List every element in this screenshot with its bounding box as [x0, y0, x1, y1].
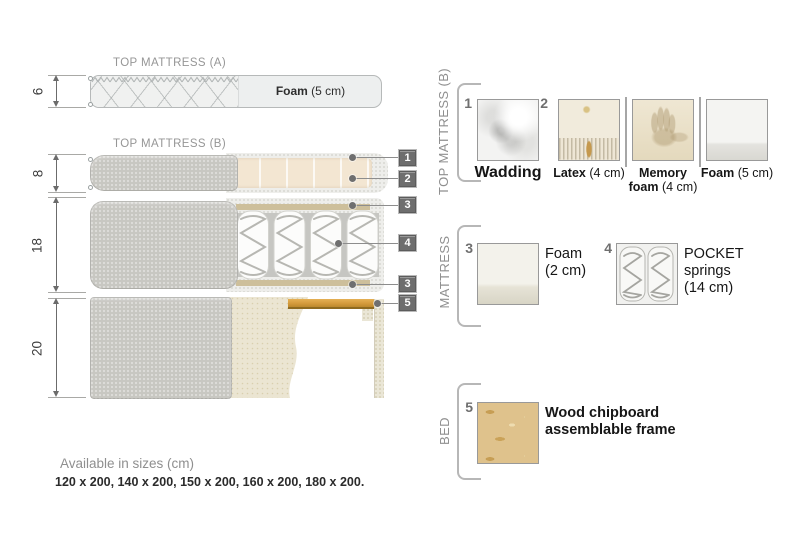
latex-name: Latex [553, 166, 586, 180]
callout-dot-5 [374, 300, 381, 307]
wadding-swatch [477, 99, 539, 161]
pocket-springs-name: POCKET springs [684, 246, 743, 279]
button-tuft [88, 185, 93, 190]
legend-num-5: 5 [459, 399, 473, 415]
foam-layer-label: Foam (5 cm) [239, 84, 382, 98]
callout-dot-4 [335, 240, 342, 247]
top-mattress-b-graphic [90, 153, 388, 193]
top-mattress-a-graphic: Foam (5 cm) [90, 75, 382, 108]
available-sizes-list: 120 x 200, 140 x 200, 150 x 200, 160 x 2… [55, 475, 364, 489]
callout-line-1 [355, 157, 399, 158]
foam-5cm-swatch [706, 99, 768, 161]
callout-2: 2 [399, 171, 416, 187]
callout-line-2 [355, 178, 399, 179]
legend-divider-1 [625, 97, 627, 167]
mattress-construction-infographic: 6 8 18 20 TOP MATTRESS (A) [0, 0, 800, 533]
dim-arrow-down [53, 186, 59, 192]
pocket-springs-swatch [616, 243, 678, 305]
pocket-springs-label: POCKET springs (14 cm) [684, 246, 758, 297]
dim-line [56, 156, 57, 190]
dim-line [56, 300, 57, 393]
callout-line-3b [355, 284, 399, 285]
dim-value: 18 [30, 233, 45, 259]
core-fabric-cover [90, 201, 238, 289]
memory-foam-swatch [632, 99, 694, 161]
legend-num-3: 3 [459, 240, 473, 256]
dim-arrow-down [53, 286, 59, 292]
foam-5cm-name: Foam [701, 166, 734, 180]
bed-base-graphic [90, 297, 384, 399]
dim-value: 20 [30, 336, 45, 362]
chipboard-name: Wood chipboard assemblable frame [545, 405, 676, 438]
frame-corner-block [362, 308, 373, 321]
callout-3b: 3 [399, 276, 416, 292]
foam-2cm-name: Foam [545, 246, 582, 262]
dim-arrow-up [53, 75, 59, 81]
dim-value: 8 [31, 161, 46, 187]
callout-3a: 3 [399, 197, 416, 213]
button-tuft [88, 157, 93, 162]
wood-slat [288, 299, 374, 309]
legend-num-1: 1 [458, 95, 472, 111]
dim-arrow-up [53, 154, 59, 160]
legend-num-2: 2 [534, 95, 548, 111]
foam-block-row [234, 158, 372, 188]
foam-2cm-size: (2 cm) [545, 263, 615, 280]
dim-line [56, 199, 57, 290]
callout-4: 4 [399, 235, 416, 251]
top-mattress-a-title: TOP MATTRESS (A) [113, 57, 226, 69]
dim-tick [48, 397, 86, 398]
latex-swatch [558, 99, 620, 161]
available-sizes-title: Available in sizes (cm) [60, 456, 194, 471]
foam-2cm-swatch [477, 243, 539, 305]
legend-title-mattress: MATTRESS [437, 222, 453, 322]
callout-dot-2 [349, 175, 356, 182]
button-tuft [88, 102, 93, 107]
wadding-name: Wadding [475, 164, 542, 181]
chipboard-label: Wood chipboard assemblable frame [545, 405, 680, 439]
button-tuft [88, 76, 93, 81]
latex-size: (4 cm) [586, 166, 625, 180]
legend-title-bed: BED [437, 401, 453, 461]
bed-fabric-front [90, 297, 232, 399]
foam-label-size: (5 cm) [308, 84, 345, 98]
fabric-cover [90, 155, 238, 191]
foam-label-name: Foam [276, 84, 308, 98]
pocket-springs-graphic [236, 210, 379, 280]
callout-5: 5 [399, 295, 416, 311]
dim-tick [48, 192, 86, 193]
pocket-springs-swatch-graphic [617, 244, 677, 304]
legend-divider-2 [699, 97, 701, 167]
legend-title-top-mattress-b: TOP MATTRESS (B) [436, 69, 452, 195]
memory-foam-label: Memory foam (4 cm) [625, 166, 701, 195]
dim-tick [48, 107, 86, 108]
quilt-zigzag-trim [92, 76, 238, 83]
chipboard-swatch [477, 402, 539, 464]
pocket-springs-size: (14 cm) [684, 280, 758, 297]
foam-5cm-size: (5 cm) [734, 166, 773, 180]
legend-num-4: 4 [598, 240, 612, 256]
frame-post [374, 299, 384, 398]
fabric-drape [226, 297, 312, 398]
latex-label: Latex (4 cm) [546, 166, 632, 180]
callout-dot-1 [349, 154, 356, 161]
top-mattress-b-title: TOP MATTRESS (B) [113, 138, 226, 150]
wadding-label: Wadding [462, 164, 554, 182]
callout-dot-3a [349, 202, 356, 209]
dim-arrow-up [53, 298, 59, 304]
dim-arrow-down [53, 391, 59, 397]
callout-line-5 [380, 303, 399, 304]
callout-line-4 [341, 243, 399, 244]
callout-dot-3b [349, 281, 356, 288]
memory-foam-size: (4 cm) [658, 180, 697, 194]
callout-1: 1 [399, 150, 416, 166]
dim-arrow-up [53, 197, 59, 203]
dim-tick [48, 292, 86, 293]
callout-line-3a [355, 205, 399, 206]
dim-arrow-down [53, 101, 59, 107]
dim-value: 6 [31, 79, 46, 105]
foam-5cm-label: Foam (5 cm) [699, 166, 775, 180]
